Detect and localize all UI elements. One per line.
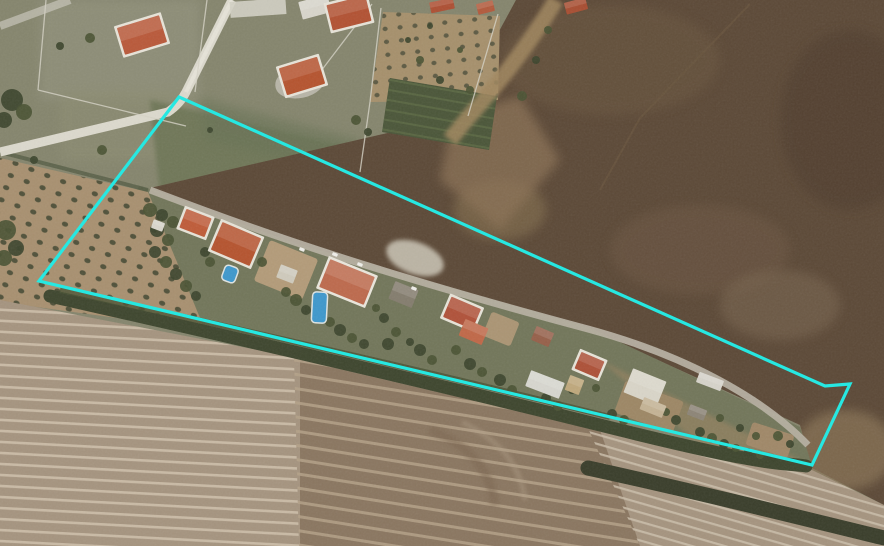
photo-grain-overlay bbox=[0, 0, 884, 546]
aerial-imagery-canvas bbox=[0, 0, 884, 546]
satellite-map-view[interactable] bbox=[0, 0, 884, 546]
